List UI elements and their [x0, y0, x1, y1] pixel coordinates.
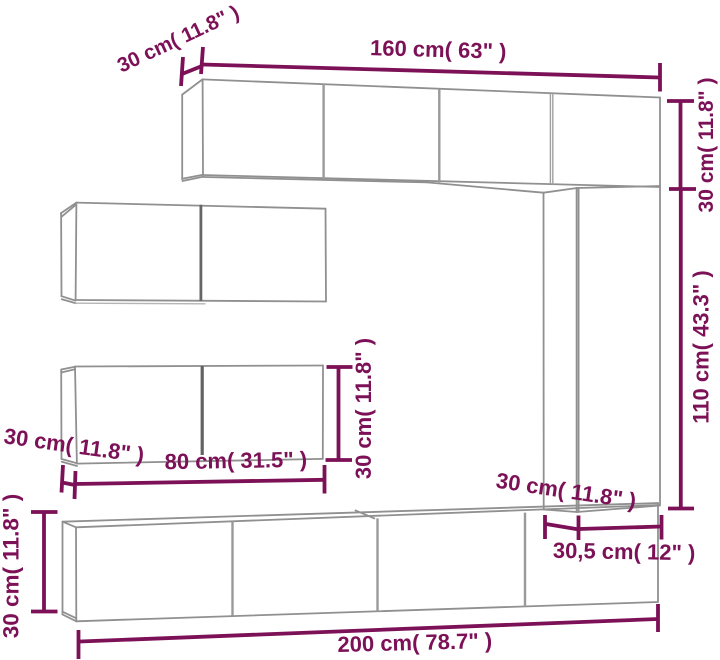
svg-text:30 cm( 11.8" ): 30 cm( 11.8" ) [695, 78, 718, 213]
svg-text:110 cm( 43.3" ): 110 cm( 43.3" ) [689, 270, 714, 424]
svg-text:30 cm( 11.8" ): 30 cm( 11.8" ) [0, 494, 24, 639]
svg-text:80 cm( 31.5" ): 80 cm( 31.5" ) [164, 447, 307, 474]
svg-text:200 cm( 78.7" ): 200 cm( 78.7" ) [337, 628, 492, 657]
svg-text:30 cm( 11.8" ): 30 cm( 11.8" ) [351, 338, 376, 479]
svg-text:160 cm( 63" ): 160 cm( 63" ) [370, 35, 507, 64]
svg-text:30,5 cm( 12" ): 30,5 cm( 12" ) [553, 538, 696, 565]
